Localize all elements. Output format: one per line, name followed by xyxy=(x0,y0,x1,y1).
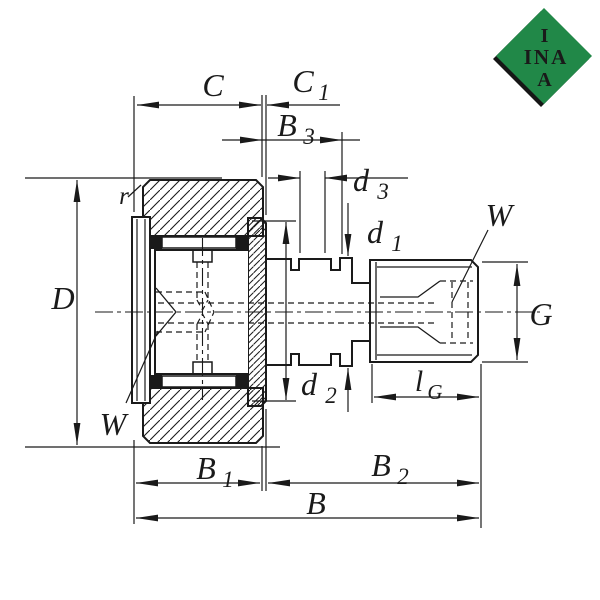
dim-label-d2-sub: 2 xyxy=(325,383,337,408)
dim-label-d-outer: D xyxy=(50,280,74,316)
technical-drawing: C C 1 B 3 d 3 d 1 d 2 r D W W G l G B 1 … xyxy=(0,0,600,600)
ina-logo-line3: A xyxy=(537,69,552,91)
dim-label-c1-sub: 1 xyxy=(318,80,330,105)
dim-label-d3-sub: 3 xyxy=(376,179,389,204)
dim-label-b3: B xyxy=(277,107,297,143)
dim-label-b3-sub: 3 xyxy=(302,124,315,149)
ina-logo: I INA A xyxy=(493,8,592,107)
dim-label-d3: d xyxy=(353,162,370,198)
thread-section xyxy=(370,260,478,362)
ina-logo-line2: INA xyxy=(524,45,569,69)
outer-ring-top-section xyxy=(143,180,263,236)
dim-label-b2: B xyxy=(371,447,391,483)
dim-label-c1: C xyxy=(292,63,314,99)
dim-label-b1-sub: 1 xyxy=(222,467,234,492)
dim-label-r: r xyxy=(119,183,129,210)
dim-label-w-left: W xyxy=(100,406,130,442)
needle-rollers-bottom xyxy=(162,376,236,387)
dim-label-d2: d xyxy=(301,366,318,402)
needle-rollers-top xyxy=(162,237,236,248)
dim-label-b1: B xyxy=(196,450,216,486)
dim-label-c: C xyxy=(202,67,224,103)
dim-label-d1: d xyxy=(367,214,384,250)
dim-label-w-right: W xyxy=(486,197,516,233)
stud-collar-bottom-profile xyxy=(266,341,370,366)
dim-label-g: G xyxy=(529,296,552,332)
dim-label-b2-sub: 2 xyxy=(397,464,409,489)
dim-label-lg-sub: G xyxy=(427,380,442,404)
ina-logo-line1: I xyxy=(541,25,550,47)
cam-follower-section xyxy=(95,180,540,443)
stud-collar-top-profile xyxy=(266,258,370,283)
dim-label-b: B xyxy=(306,485,326,521)
side-washer xyxy=(132,217,150,403)
dim-label-lg: l xyxy=(415,365,423,398)
dim-label-d1-sub: 1 xyxy=(391,231,403,256)
